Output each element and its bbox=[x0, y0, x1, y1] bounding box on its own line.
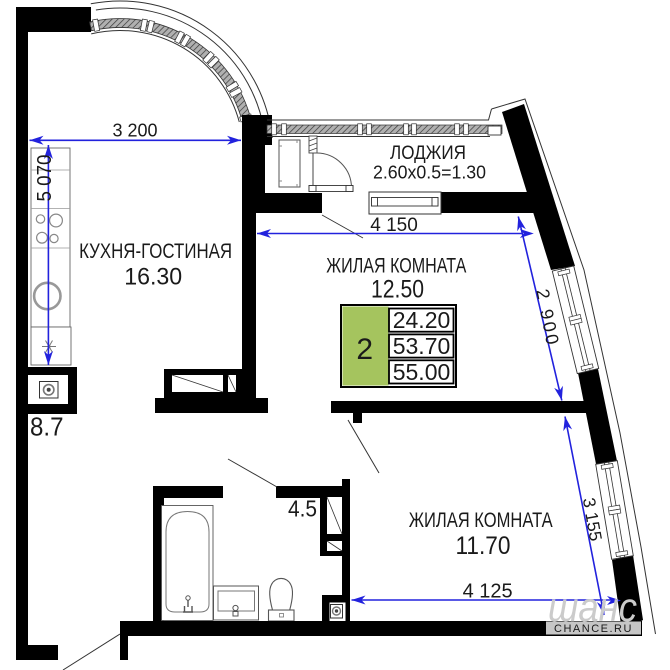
svg-text:4 125: 4 125 bbox=[463, 581, 513, 603]
svg-text:5 070: 5 070 bbox=[34, 155, 56, 202]
svg-text:ЛОДЖИЯ: ЛОДЖИЯ bbox=[390, 142, 466, 164]
svg-text:ЖИЛАЯ КОМНАТА: ЖИЛАЯ КОМНАТА bbox=[326, 255, 466, 278]
svg-text:3 200: 3 200 bbox=[112, 121, 157, 141]
svg-text:55.00: 55.00 bbox=[393, 359, 451, 385]
svg-text:2.60х0.5=1.30: 2.60х0.5=1.30 bbox=[373, 163, 486, 183]
svg-text:КУХНЯ-ГОСТИНАЯ: КУХНЯ-ГОСТИНАЯ bbox=[79, 240, 232, 263]
svg-text:8.7: 8.7 bbox=[30, 412, 64, 442]
svg-text:4 150: 4 150 bbox=[370, 215, 418, 236]
svg-text:12.50: 12.50 bbox=[371, 276, 424, 304]
svg-text:53.70: 53.70 bbox=[393, 333, 451, 359]
svg-text:4.5: 4.5 bbox=[288, 496, 317, 522]
svg-text:2: 2 bbox=[356, 333, 373, 366]
svg-text:ЖИЛАЯ КОМНАТА: ЖИЛАЯ КОМНАТА bbox=[409, 509, 553, 532]
svg-text:24.20: 24.20 bbox=[393, 307, 451, 333]
svg-text:16.30: 16.30 bbox=[124, 264, 182, 291]
svg-text:11.70: 11.70 bbox=[456, 532, 511, 560]
svg-text:CHANCE.RU: CHANCE.RU bbox=[554, 623, 633, 635]
